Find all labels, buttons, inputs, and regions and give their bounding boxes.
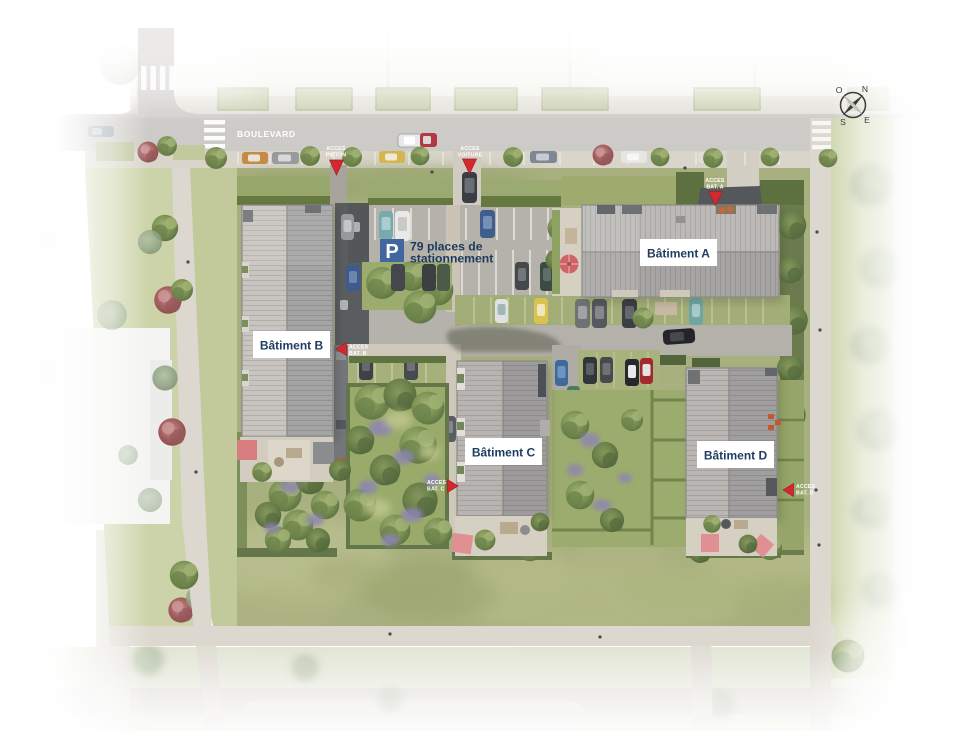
svg-text:BAT. B: BAT. B [349,351,367,357]
svg-text:ACCES: ACCES [427,480,446,486]
svg-text:S: S [840,117,846,127]
svg-text:O: O [836,85,843,95]
svg-text:stationnement: stationnement [410,252,493,266]
svg-text:E: E [864,115,870,125]
svg-text:ACCES: ACCES [796,484,815,490]
svg-text:Bâtiment A: Bâtiment A [647,247,710,261]
svg-text:ACCES: ACCES [326,146,345,152]
svg-text:BAT. C: BAT. C [427,487,445,493]
svg-text:ACCES: ACCES [349,345,368,351]
svg-text:N: N [862,84,868,94]
svg-text:P: P [385,241,398,263]
svg-text:VOITURE: VOITURE [458,153,483,159]
svg-text:ACCES: ACCES [705,178,724,184]
svg-text:BOULEVARD: BOULEVARD [237,129,296,139]
svg-text:PIETON: PIETON [326,153,346,159]
svg-text:BAT. A: BAT. A [706,185,723,191]
svg-text:Bâtiment C: Bâtiment C [472,446,536,460]
svg-text:BAT. D: BAT. D [796,491,814,497]
svg-text:Bâtiment D: Bâtiment D [704,449,768,463]
svg-text:Bâtiment B: Bâtiment B [260,339,324,353]
svg-text:ACCES: ACCES [460,146,479,152]
